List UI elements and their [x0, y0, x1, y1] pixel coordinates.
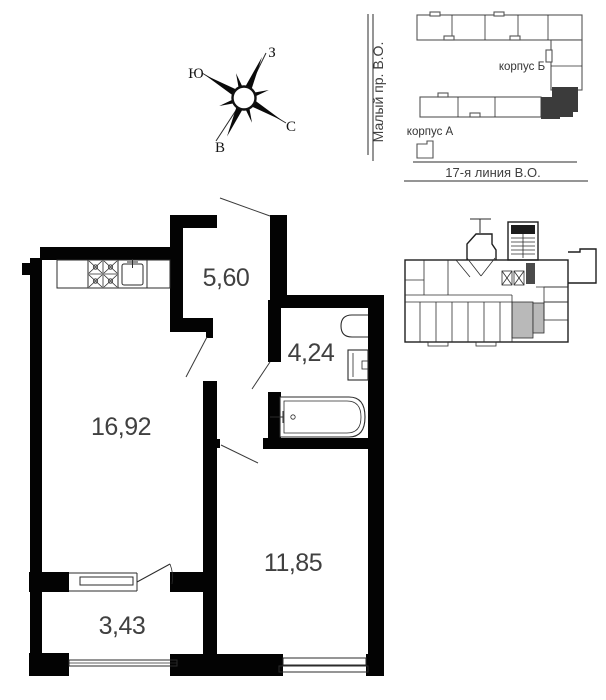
compass-star [202, 53, 286, 141]
site-map: Малый пр. В.О. корпус Б [368, 12, 588, 181]
building-b-highlight [541, 87, 578, 119]
apartment-plan: 5,60 4,24 16,92 11,85 3,43 [22, 198, 384, 676]
key-plan-highlight [533, 303, 544, 333]
compass-label-east: В [215, 140, 225, 156]
key-plan-elevators [502, 263, 535, 285]
key-plan-highlight [512, 302, 533, 338]
bedroom-door-leader [221, 445, 258, 463]
street-name-vertical: Малый пр. В.О. [370, 42, 386, 143]
room-area-label-bedroom: 11,85 [264, 549, 322, 577]
toilet-icon [341, 315, 368, 337]
kitchen-sink-icon [122, 259, 143, 285]
room-area-label-bathroom: 4,24 [288, 339, 335, 367]
balcony-door [137, 564, 173, 584]
key-plan [405, 219, 596, 346]
washbasin-icon [348, 350, 368, 380]
compass-label-north: С [286, 119, 296, 135]
compass-label-south: Ю [188, 66, 203, 82]
living-window [69, 573, 137, 591]
room-area-label-balcony: 3,43 [99, 612, 146, 640]
bathroom-door-leader [252, 362, 270, 389]
room-area-label-hallway: 5,60 [203, 264, 250, 292]
stove-icon [88, 260, 118, 288]
building-b-label: корпус Б [499, 61, 545, 73]
compass-rose: З Ю С В [188, 45, 296, 156]
street-name-horizontal: 17-я линия В.О. [445, 165, 540, 180]
entrance-door-leader [220, 198, 270, 216]
balcony-window [69, 660, 177, 666]
hall-living-door-leader [186, 337, 207, 377]
kitchen-counter [57, 259, 170, 288]
bedroom-window [279, 658, 368, 672]
bathroom-fixtures [270, 315, 368, 437]
compass-label-west: З [268, 45, 276, 61]
building-a-outline [417, 141, 433, 158]
apartment-floor-plan-page: З Ю С В Малый пр. В.О. [0, 0, 606, 700]
building-a-label: корпус А [407, 126, 454, 138]
room-area-label-living: 16,92 [91, 413, 151, 441]
bathtub-icon [270, 397, 365, 437]
